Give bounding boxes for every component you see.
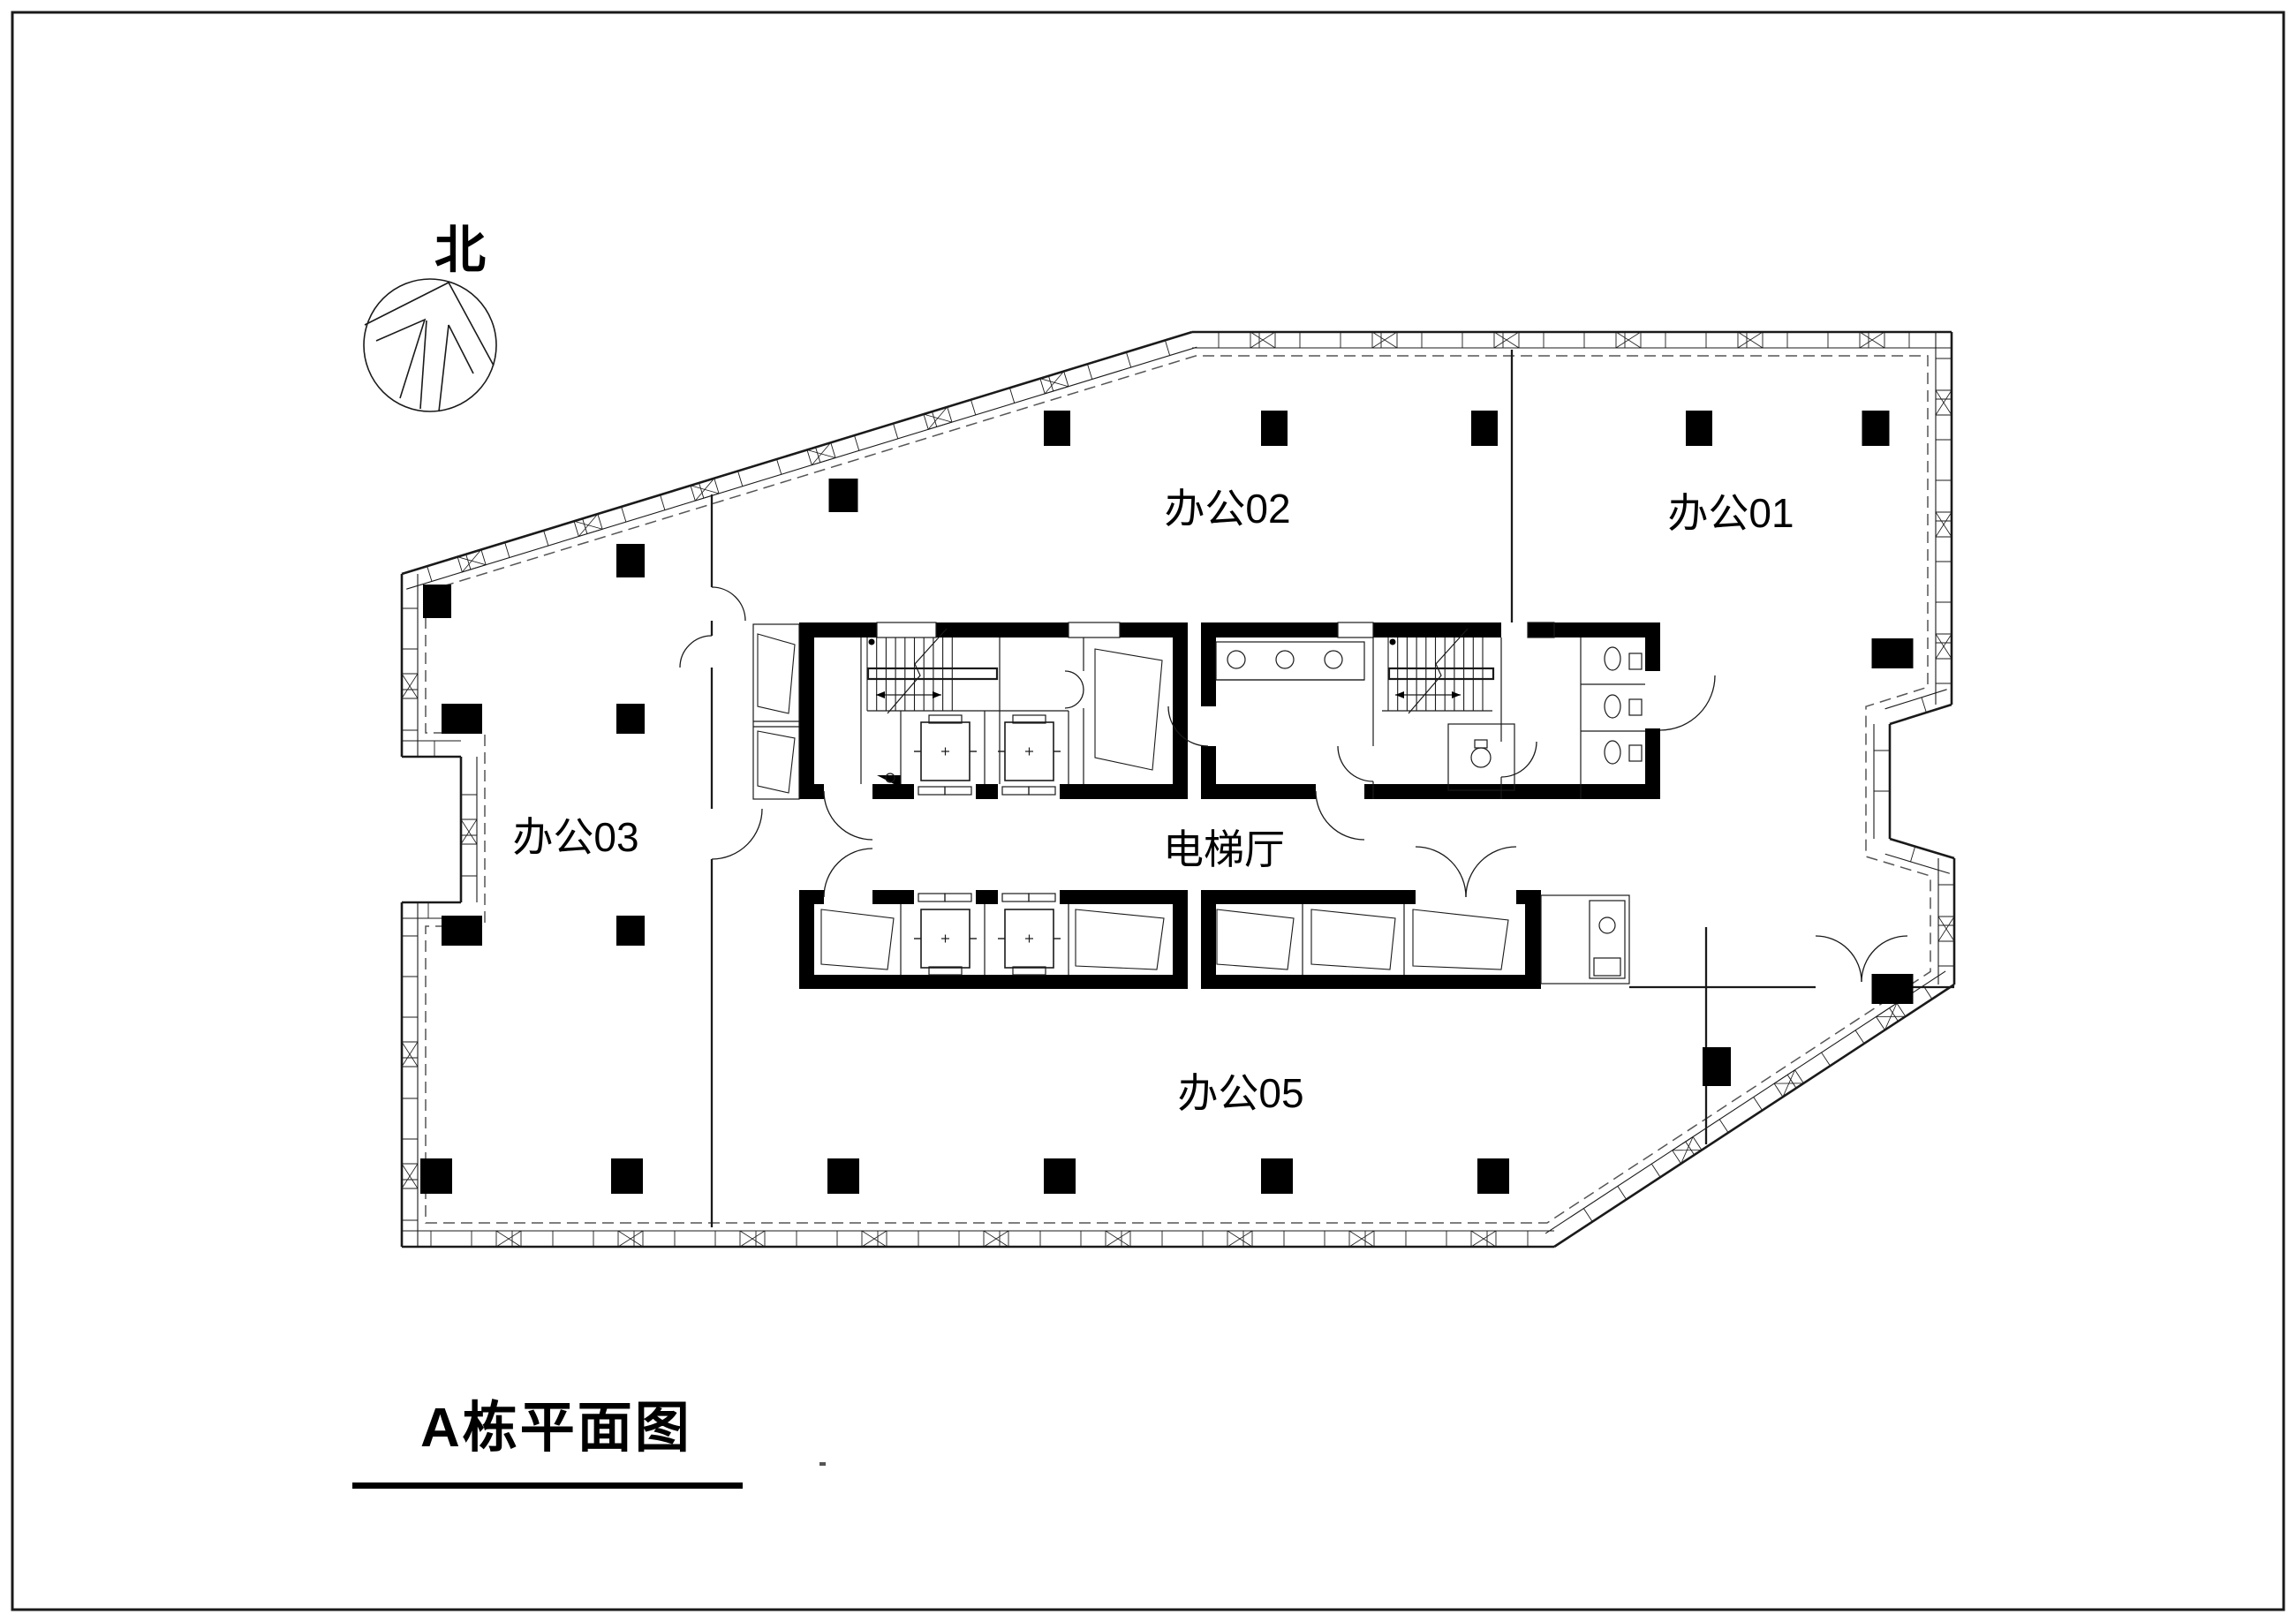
- room-label-office-03: 办公03: [512, 814, 638, 860]
- room-label-elevator-hall: 电梯厅: [1163, 826, 1285, 872]
- elevator-cars: [914, 715, 1061, 975]
- north-arrow-icon: [364, 279, 496, 411]
- stray-mark: [819, 1462, 826, 1466]
- title-underline: [352, 1482, 743, 1489]
- drawing-title: A栋平面图: [420, 1383, 692, 1462]
- core-detail: [753, 622, 1645, 984]
- room-label-office-01: 办公01: [1667, 490, 1794, 536]
- floor-plan-canvas: 办公02办公01办公03办公05电梯厅: [0, 0, 2296, 1622]
- core-walls: [799, 622, 1660, 989]
- room-labels: 办公02办公01办公03办公05电梯厅: [512, 486, 1794, 1116]
- drawing-sheet: 办公02办公01办公03办公05电梯厅 北 A栋平面图: [0, 0, 2296, 1622]
- sheet-border: [12, 12, 2284, 1610]
- north-label: 北: [434, 208, 486, 283]
- room-label-office-05: 办公05: [1177, 1070, 1303, 1116]
- room-label-office-02: 办公02: [1164, 486, 1290, 532]
